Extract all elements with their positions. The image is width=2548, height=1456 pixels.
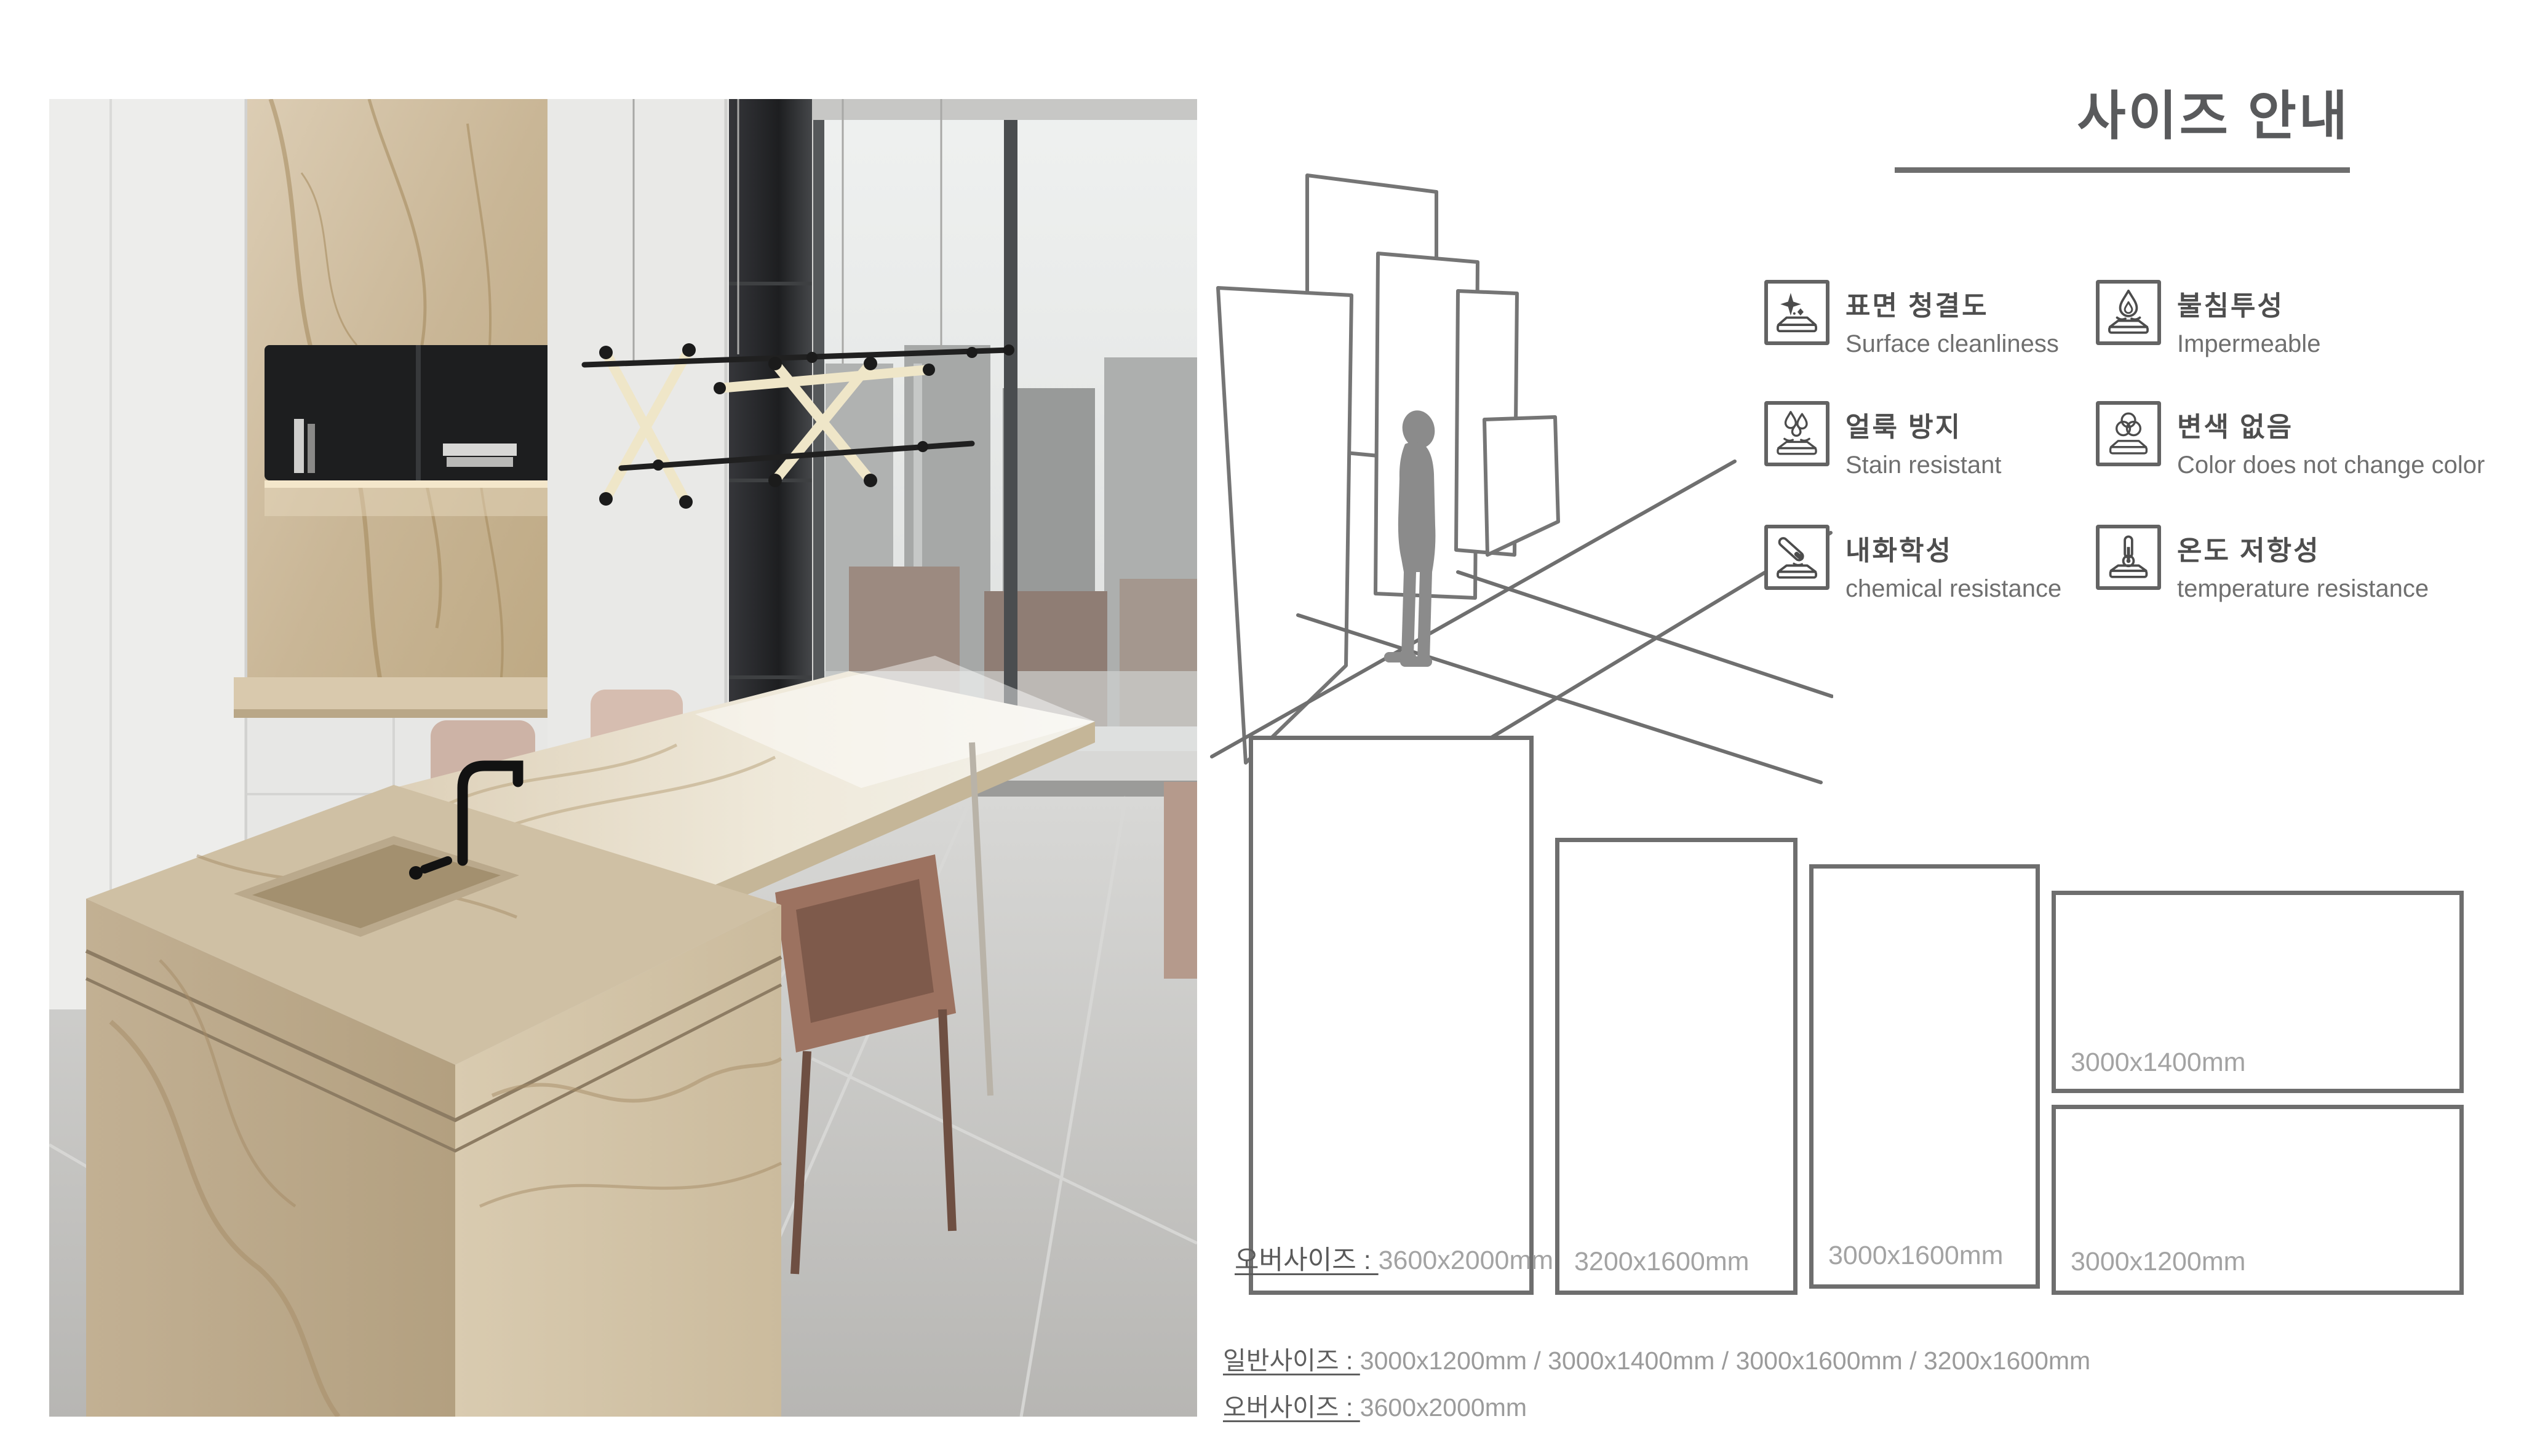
title-block: 사이즈 안내 xyxy=(1895,73,2350,149)
color-circles-slab-icon xyxy=(2096,401,2161,466)
feature-stain-resistant: 얼룩 방지 Stain resistant xyxy=(1764,401,2001,479)
size-value: 3200x1600mm xyxy=(1574,1247,1749,1276)
feature-ko-label: 온도 저항성 xyxy=(2177,528,2429,568)
kitchen-photo xyxy=(49,99,1197,1417)
feature-en-label: Color does not change color xyxy=(2177,452,2485,479)
standard-size-values: 3000x1200mm / 3000x1400mm / 3000x1600mm … xyxy=(1360,1347,2090,1375)
slab-left xyxy=(1218,288,1352,763)
feature-ko-label: 얼룩 방지 xyxy=(1845,405,2001,444)
feature-en-label: Stain resistant xyxy=(1845,452,2001,479)
slab-small xyxy=(1484,417,1558,555)
feature-en-label: Impermeable xyxy=(2177,330,2320,358)
title-underline xyxy=(1895,167,2350,173)
feature-en-label: Surface cleanliness xyxy=(1845,330,2059,358)
feature-surface-cleanliness: 표면 청결도 Surface cleanliness xyxy=(1764,280,2059,358)
size-rect-3600x2000: 오버사이즈 : 3600x2000mm xyxy=(1249,736,1534,1295)
feature-no-discoloration: 변색 없음 Color does not change color xyxy=(2096,401,2485,479)
size-rect-3000x1400: 3000x1400mm xyxy=(2052,891,2464,1093)
kitchen-photo-art xyxy=(49,99,1197,1417)
oversize-value: 3600x2000mm xyxy=(1360,1393,1527,1422)
size-illustration xyxy=(1200,141,1833,794)
feature-temperature-resistance: 온도 저항성 temperature resistance xyxy=(2096,525,2429,603)
sparkle-slab-icon xyxy=(1764,280,1829,345)
size-rect-3200x1600: 3200x1600mm xyxy=(1555,838,1798,1295)
feature-ko-label: 표면 청결도 xyxy=(1845,284,2059,323)
size-value: 3600x2000mm xyxy=(1379,1246,1553,1275)
feature-ko-label: 불침투성 xyxy=(2177,284,2320,323)
size-rect-label: 3000x1200mm xyxy=(2071,1247,2245,1277)
feature-ko-label: 변색 없음 xyxy=(2177,405,2485,444)
size-value: 3000x1600mm xyxy=(1828,1241,2003,1270)
summary-line-standard: 일반사이즈 : 3000x1200mm / 3000x1400mm / 3000… xyxy=(1223,1340,2090,1377)
feature-ko-label: 내화학성 xyxy=(1845,528,2061,568)
summary-line-oversize: 오버사이즈 : 3600x2000mm xyxy=(1223,1386,2090,1423)
size-rect-3000x1200: 3000x1200mm xyxy=(2052,1105,2464,1295)
size-rect-label: 오버사이즈 : 3600x2000mm xyxy=(1235,1239,1553,1277)
size-value: 3000x1200mm xyxy=(2071,1247,2245,1276)
shelf-niche xyxy=(265,345,554,516)
feature-impermeable: 불침투성 Impermeable xyxy=(2096,280,2320,358)
droplets-slab-icon xyxy=(1764,401,1829,466)
feature-chemical-resistance: 내화학성 chemical resistance xyxy=(1764,525,2061,603)
size-rect-3000x1600: 3000x1600mm xyxy=(1809,864,2040,1289)
thermometer-slab-icon xyxy=(2096,525,2161,590)
size-rect-label: 3000x1400mm xyxy=(2071,1048,2245,1078)
product-size-guide-page: 사이즈 안내 xyxy=(0,0,2548,1456)
size-value: 3000x1400mm xyxy=(2071,1048,2245,1077)
feature-en-label: chemical resistance xyxy=(1845,575,2061,603)
oversize-label: 오버사이즈 : xyxy=(1223,1393,1360,1422)
oversize-prefix: 오버사이즈 : xyxy=(1235,1246,1379,1275)
size-rect-label: 3000x1600mm xyxy=(1828,1241,2003,1271)
size-rect-label: 3200x1600mm xyxy=(1574,1247,1749,1277)
size-summary: 일반사이즈 : 3000x1200mm / 3000x1400mm / 3000… xyxy=(1223,1340,2090,1423)
feature-en-label: temperature resistance xyxy=(2177,575,2429,603)
page-title: 사이즈 안내 xyxy=(1895,73,2350,149)
test-tube-slab-icon xyxy=(1764,525,1829,590)
slab-scale-drawing xyxy=(1200,141,1833,794)
droplet-slab-icon xyxy=(2096,280,2161,345)
standard-size-label: 일반사이즈 : xyxy=(1223,1347,1360,1375)
